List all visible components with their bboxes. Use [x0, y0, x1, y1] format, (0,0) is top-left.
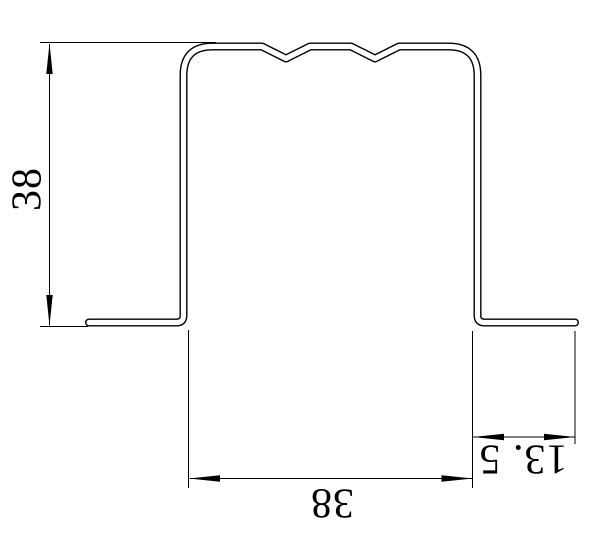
cad-drawing-canvas: 38 38 13. 5 [0, 0, 602, 540]
dimension-text-width: 38 [310, 480, 354, 526]
dimension-text-flange: 13. 5 [479, 436, 568, 482]
arrowhead-height-bottom [46, 295, 52, 326]
arrowhead-width-left [189, 475, 220, 481]
profile-sheet-core [89, 47, 575, 323]
profile-outline [89, 47, 575, 323]
arrowhead-width-right [442, 475, 473, 481]
dimension-text-height: 38 [4, 167, 50, 211]
arrowhead-height-top [46, 43, 52, 74]
